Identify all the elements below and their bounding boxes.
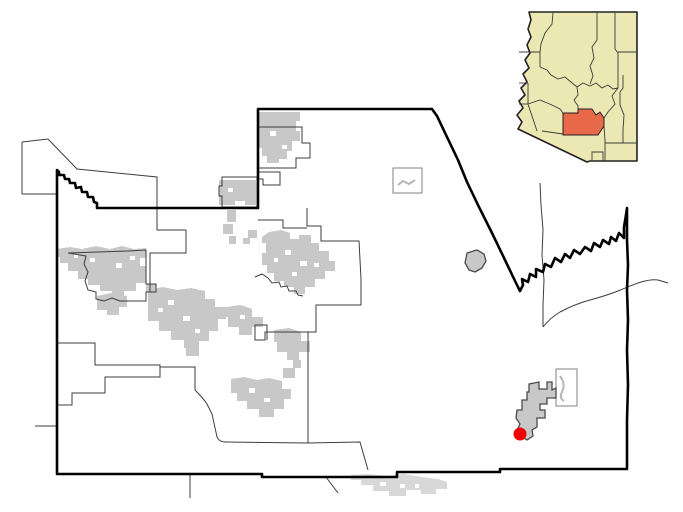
- enclave-boxes: [393, 168, 577, 406]
- outlined-communities: [465, 250, 556, 440]
- speckle: [285, 250, 291, 255]
- incorporated-area: [227, 210, 236, 222]
- incorporated-area-stanfield: [97, 293, 127, 315]
- boundary-line: [326, 477, 338, 493]
- speckle: [249, 388, 255, 393]
- speckle: [300, 261, 307, 266]
- speckle: [116, 263, 122, 268]
- speckle: [282, 145, 287, 149]
- speckle: [130, 256, 135, 260]
- enclave-box: [556, 369, 577, 406]
- speckle: [90, 258, 95, 262]
- boundary-line: [56, 343, 368, 470]
- boundary-line: [22, 142, 57, 194]
- speckle: [380, 482, 386, 486]
- speckle: [400, 484, 405, 488]
- river-line: [540, 183, 544, 327]
- speckle: [415, 484, 419, 488]
- speckle: [228, 188, 233, 192]
- speckle: [168, 300, 174, 305]
- incorporated-area: [223, 224, 233, 234]
- incorporated-area-gold-canyon: [259, 112, 300, 163]
- speckle: [270, 131, 276, 136]
- incorporated-area: [283, 368, 295, 378]
- map-canvas: [0, 0, 683, 512]
- incorporated-area-dudleyville: [465, 250, 486, 272]
- incorporated-area: [248, 230, 257, 238]
- county-border: [57, 109, 628, 477]
- county-locator-map: [0, 0, 683, 512]
- speckle: [183, 316, 190, 321]
- speckle: [158, 308, 163, 312]
- speckle: [314, 263, 319, 267]
- incorporated-area: [243, 238, 250, 244]
- speckle: [195, 329, 200, 333]
- speckle: [292, 272, 297, 276]
- incorporated-area-coolidge: [226, 305, 263, 335]
- incorporated-area: [274, 328, 310, 360]
- incorporated-area-queen-creek: [219, 180, 256, 205]
- boundary-line: [258, 220, 307, 228]
- incorporated-area: [293, 360, 301, 368]
- state-inset: [517, 12, 637, 162]
- incorporated-area-florence: [262, 230, 335, 294]
- river-line: [543, 280, 668, 327]
- incorporated-area-eloy: [231, 377, 291, 417]
- boundary-line: [150, 208, 186, 292]
- speckle: [240, 315, 245, 319]
- incorporated-area: [229, 236, 236, 244]
- boundary-line: [56, 367, 160, 405]
- enclave-box: [393, 168, 422, 193]
- boundary-line: [258, 172, 280, 185]
- speckle: [264, 398, 270, 402]
- speckle: [274, 258, 278, 262]
- incorporated-area: [186, 348, 199, 356]
- location-marker: [514, 428, 527, 441]
